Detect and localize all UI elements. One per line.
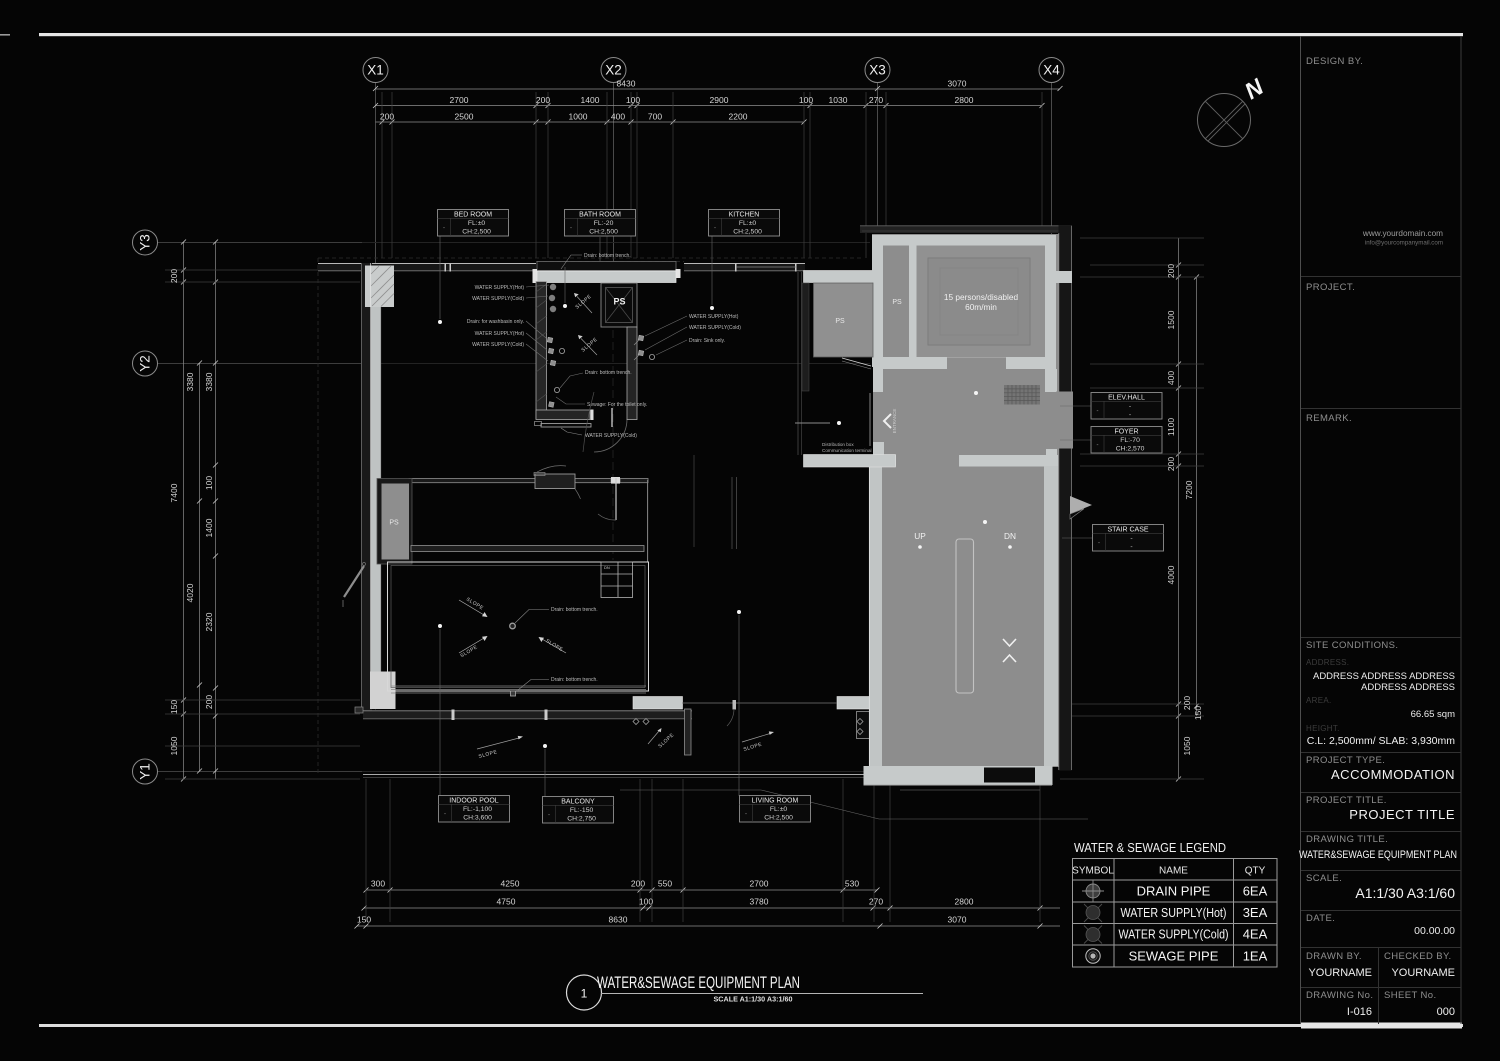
svg-text:PROJECT TITLE: PROJECT TITLE: [1349, 807, 1455, 822]
svg-text:Drain: for washbasin only.: Drain: for washbasin only.: [467, 319, 524, 325]
svg-text:2700: 2700: [450, 95, 469, 105]
svg-text:NAME: NAME: [1159, 866, 1188, 877]
svg-text:530: 530: [845, 879, 859, 889]
svg-text:REMARK.: REMARK.: [1306, 413, 1352, 424]
svg-text:ENTRANCE: ENTRANCE: [892, 409, 897, 434]
svg-text:1400: 1400: [581, 95, 600, 105]
svg-text:DRAWING No.: DRAWING No.: [1306, 990, 1373, 1001]
svg-text:15 persons/disabled: 15 persons/disabled: [944, 292, 1019, 302]
svg-text:270: 270: [869, 95, 883, 105]
svg-text:CH:3,600: CH:3,600: [463, 815, 492, 822]
svg-text:400: 400: [611, 112, 625, 122]
svg-text:FL:-150: FL:-150: [570, 807, 594, 814]
svg-text:CH:2,500: CH:2,500: [589, 229, 618, 236]
svg-text:WATER SUPPLY(Cold): WATER SUPPLY(Cold): [689, 325, 741, 331]
svg-text:4000: 4000: [1166, 565, 1176, 584]
svg-text:PS: PS: [389, 520, 399, 527]
svg-text:SCALE.: SCALE.: [1306, 873, 1342, 884]
svg-text:300: 300: [371, 879, 385, 889]
svg-text:CH:2,500: CH:2,500: [764, 815, 793, 822]
svg-text:C.L: 2,500mm/ SLAB: 3,930mm: C.L: 2,500mm/ SLAB: 3,930mm: [1307, 735, 1455, 747]
svg-text:1: 1: [581, 987, 588, 1001]
svg-text:DESIGN BY.: DESIGN BY.: [1306, 56, 1363, 67]
svg-text:400: 400: [1166, 371, 1176, 385]
svg-text:-: -: [548, 813, 550, 819]
svg-text:3070: 3070: [948, 915, 967, 925]
svg-text:AREA.: AREA.: [1306, 696, 1332, 705]
svg-text:1400: 1400: [204, 518, 214, 537]
svg-text:LIVING ROOM: LIVING ROOM: [752, 797, 799, 804]
svg-text:CH:2,500: CH:2,500: [733, 229, 762, 236]
svg-text:150: 150: [357, 915, 371, 925]
svg-text:SYMBOL: SYMBOL: [1072, 866, 1114, 877]
svg-text:3380: 3380: [185, 372, 195, 391]
svg-text:WATER SUPPLY(Hot): WATER SUPPLY(Hot): [689, 314, 739, 320]
svg-text:FL:-70: FL:-70: [1120, 437, 1140, 444]
svg-text:00.00.00: 00.00.00: [1414, 925, 1455, 937]
svg-text:X4: X4: [1043, 63, 1060, 78]
svg-text:HEIGHT.: HEIGHT.: [1306, 724, 1340, 733]
svg-text:2800: 2800: [955, 95, 974, 105]
svg-text:-: -: [1098, 541, 1100, 547]
svg-text:1100: 1100: [1166, 418, 1176, 437]
svg-text:6EA: 6EA: [1243, 884, 1268, 899]
svg-text:-: -: [1129, 403, 1131, 410]
svg-text:Drain: bottom trench.: Drain: bottom trench.: [584, 253, 631, 259]
svg-text:PROJECT.: PROJECT.: [1306, 282, 1355, 293]
svg-text:-: -: [1130, 544, 1132, 551]
svg-text:PS: PS: [892, 299, 902, 306]
svg-text:3780: 3780: [750, 897, 769, 907]
svg-text:Drain: bottom trench.: Drain: bottom trench.: [551, 677, 598, 683]
svg-text:SEWAGE PIPE: SEWAGE PIPE: [1129, 949, 1219, 964]
svg-text:200: 200: [169, 269, 179, 283]
svg-text:7200: 7200: [1184, 480, 1194, 499]
svg-text:3070: 3070: [948, 79, 967, 89]
svg-text:WATER&SEWAGE EQUIPMENT PLAN: WATER&SEWAGE EQUIPMENT PLAN: [1299, 849, 1457, 861]
svg-text:DN: DN: [1004, 531, 1016, 541]
svg-text:700: 700: [648, 112, 662, 122]
svg-text:Y1: Y1: [138, 763, 153, 780]
svg-text:FL:-20: FL:-20: [594, 220, 614, 227]
svg-text:PS: PS: [613, 297, 625, 307]
svg-text:PS: PS: [835, 318, 845, 325]
svg-text:1050: 1050: [1182, 736, 1192, 755]
svg-text:-: -: [443, 226, 445, 232]
svg-text:-: -: [745, 812, 747, 818]
svg-text:DRAWN BY.: DRAWN BY.: [1306, 951, 1362, 962]
svg-text:000: 000: [1437, 1006, 1455, 1018]
svg-text:3380: 3380: [204, 372, 214, 391]
svg-text:X1: X1: [367, 63, 384, 78]
svg-text:FL:±0: FL:±0: [468, 220, 486, 227]
svg-text:Sewage: For the toilet only.: Sewage: For the toilet only.: [587, 402, 647, 408]
svg-text:2500: 2500: [455, 112, 474, 122]
svg-text:Drain: bottom trench.: Drain: bottom trench.: [585, 370, 632, 376]
svg-text:1050: 1050: [169, 736, 179, 755]
svg-text:-: -: [1097, 443, 1099, 449]
svg-text:WATER SUPPLY(Hot): WATER SUPPLY(Hot): [1121, 905, 1227, 920]
svg-text:-: -: [1129, 412, 1131, 419]
svg-text:4020: 4020: [185, 583, 195, 602]
svg-text:FL:±0: FL:±0: [739, 220, 757, 227]
svg-text:ELEV.HALL: ELEV.HALL: [1108, 394, 1145, 401]
svg-text:4EA: 4EA: [1243, 927, 1268, 942]
svg-text:270: 270: [869, 897, 883, 907]
svg-text:DN: DN: [604, 565, 610, 570]
svg-text:2200: 2200: [729, 112, 748, 122]
svg-text:WATER SUPPLY(Cold): WATER SUPPLY(Cold): [472, 342, 524, 348]
svg-text:CH:2,750: CH:2,750: [567, 816, 596, 823]
svg-text:WATER & SEWAGE LEGEND: WATER & SEWAGE LEGEND: [1074, 840, 1226, 855]
svg-text:FL:±0: FL:±0: [770, 806, 788, 813]
svg-text:200: 200: [1166, 457, 1176, 471]
svg-text:A1:1/30 A3:1/60: A1:1/30 A3:1/60: [1355, 885, 1455, 901]
svg-text:Drain: Sink only.: Drain: Sink only.: [689, 338, 725, 344]
svg-text:100: 100: [639, 897, 653, 907]
svg-text:100: 100: [204, 476, 214, 490]
svg-text:FL:-1,100: FL:-1,100: [463, 806, 492, 813]
svg-text:150: 150: [1193, 706, 1203, 720]
svg-text:BALCONY: BALCONY: [561, 798, 595, 805]
svg-text:66.65 sqm: 66.65 sqm: [1411, 709, 1455, 720]
svg-text:-: -: [570, 226, 572, 232]
svg-text:Distribution box: Distribution box: [822, 442, 854, 447]
svg-text:BATH ROOM: BATH ROOM: [579, 211, 621, 218]
svg-text:1500: 1500: [1166, 310, 1176, 329]
svg-text:60m/min: 60m/min: [965, 302, 997, 312]
svg-text:2320: 2320: [204, 612, 214, 631]
svg-text:WATER SUPPLY(Cold): WATER SUPPLY(Cold): [1119, 927, 1229, 942]
svg-text:info@yourcompanymail.com: info@yourcompanymail.com: [1365, 240, 1443, 247]
svg-text:1030: 1030: [829, 95, 848, 105]
svg-text:200: 200: [204, 695, 214, 709]
svg-text:WATER SUPPLY(Hot): WATER SUPPLY(Hot): [475, 331, 525, 337]
svg-text:WATER SUPPLY(Hot): WATER SUPPLY(Hot): [475, 285, 525, 291]
svg-text:Y2: Y2: [138, 355, 153, 372]
svg-text:X2: X2: [605, 63, 622, 78]
svg-text:I-016: I-016: [1347, 1006, 1372, 1018]
svg-text:2700: 2700: [750, 879, 769, 889]
svg-text:3EA: 3EA: [1243, 905, 1268, 920]
svg-text:WATER&SEWAGE EQUIPMENT PLAN: WATER&SEWAGE EQUIPMENT PLAN: [597, 974, 800, 992]
svg-text:SHEET No.: SHEET No.: [1384, 990, 1437, 1001]
svg-text:SITE CONDITIONS.: SITE CONDITIONS.: [1306, 640, 1398, 651]
svg-text:CH:2,570: CH:2,570: [1116, 446, 1145, 453]
svg-text:CH:2,500: CH:2,500: [462, 229, 491, 236]
svg-text:Y3: Y3: [138, 234, 153, 251]
svg-text:ADDRESS ADDRESS: ADDRESS ADDRESS: [1361, 682, 1455, 693]
svg-text:FOYER: FOYER: [1114, 428, 1138, 435]
svg-text:DATE.: DATE.: [1306, 913, 1335, 924]
svg-text:-: -: [1097, 409, 1099, 415]
svg-text:PROJECT TITLE.: PROJECT TITLE.: [1306, 795, 1387, 806]
svg-text:-: -: [1130, 535, 1132, 542]
svg-text:200: 200: [536, 95, 550, 105]
svg-text:7400: 7400: [169, 483, 179, 502]
svg-text:100: 100: [799, 95, 813, 105]
svg-text:150: 150: [169, 700, 179, 714]
svg-text:200: 200: [380, 112, 394, 122]
svg-text:KITCHEN: KITCHEN: [729, 211, 760, 218]
svg-text:200: 200: [631, 879, 645, 889]
svg-text:DRAIN PIPE: DRAIN PIPE: [1137, 884, 1211, 899]
svg-text:STAIR CASE: STAIR CASE: [1107, 526, 1148, 533]
svg-text:X3: X3: [869, 63, 886, 78]
svg-text:BED ROOM: BED ROOM: [454, 211, 492, 218]
svg-text:100: 100: [626, 95, 640, 105]
svg-text:QTY: QTY: [1245, 866, 1266, 877]
svg-text:550: 550: [658, 879, 672, 889]
svg-text:YOURNAME: YOURNAME: [1308, 967, 1372, 979]
svg-text:WATER SUPPLY(Cold): WATER SUPPLY(Cold): [585, 433, 637, 439]
svg-text:ADDRESS ADDRESS ADDRESS: ADDRESS ADDRESS ADDRESS: [1313, 671, 1455, 682]
svg-text:UP: UP: [914, 531, 926, 541]
svg-text:INDOOR POOL: INDOOR POOL: [449, 797, 499, 804]
svg-text:8430: 8430: [617, 79, 636, 89]
svg-text:4750: 4750: [497, 897, 516, 907]
svg-text:YOURNAME: YOURNAME: [1391, 967, 1455, 979]
svg-text:2800: 2800: [955, 897, 974, 907]
svg-text:8630: 8630: [609, 915, 628, 925]
svg-text:200: 200: [1166, 264, 1176, 278]
svg-text:Communication terminal: Communication terminal: [822, 448, 872, 453]
svg-text:ACCOMMODATION: ACCOMMODATION: [1331, 767, 1455, 782]
svg-text:SCALE A1:1/30 A3:1/60: SCALE A1:1/30 A3:1/60: [714, 995, 793, 1004]
svg-text:1EA: 1EA: [1243, 949, 1268, 964]
svg-text:www.yourdomain.com: www.yourdomain.com: [1362, 229, 1443, 238]
svg-text:-: -: [444, 812, 446, 818]
svg-text:ADDRESS.: ADDRESS.: [1306, 658, 1349, 667]
svg-text:1000: 1000: [569, 112, 588, 122]
svg-text:DRAWING TITLE.: DRAWING TITLE.: [1306, 834, 1388, 845]
svg-text:WATER SUPPLY(Cold): WATER SUPPLY(Cold): [472, 296, 524, 302]
svg-text:Drain: bottom trench.: Drain: bottom trench.: [551, 607, 598, 613]
svg-text:-: -: [714, 226, 716, 232]
svg-text:PROJECT TYPE.: PROJECT TYPE.: [1306, 755, 1385, 766]
svg-text:2900: 2900: [710, 95, 729, 105]
svg-text:4250: 4250: [501, 879, 520, 889]
svg-text:CHECKED BY.: CHECKED BY.: [1384, 951, 1452, 962]
svg-text:200: 200: [1182, 696, 1192, 710]
